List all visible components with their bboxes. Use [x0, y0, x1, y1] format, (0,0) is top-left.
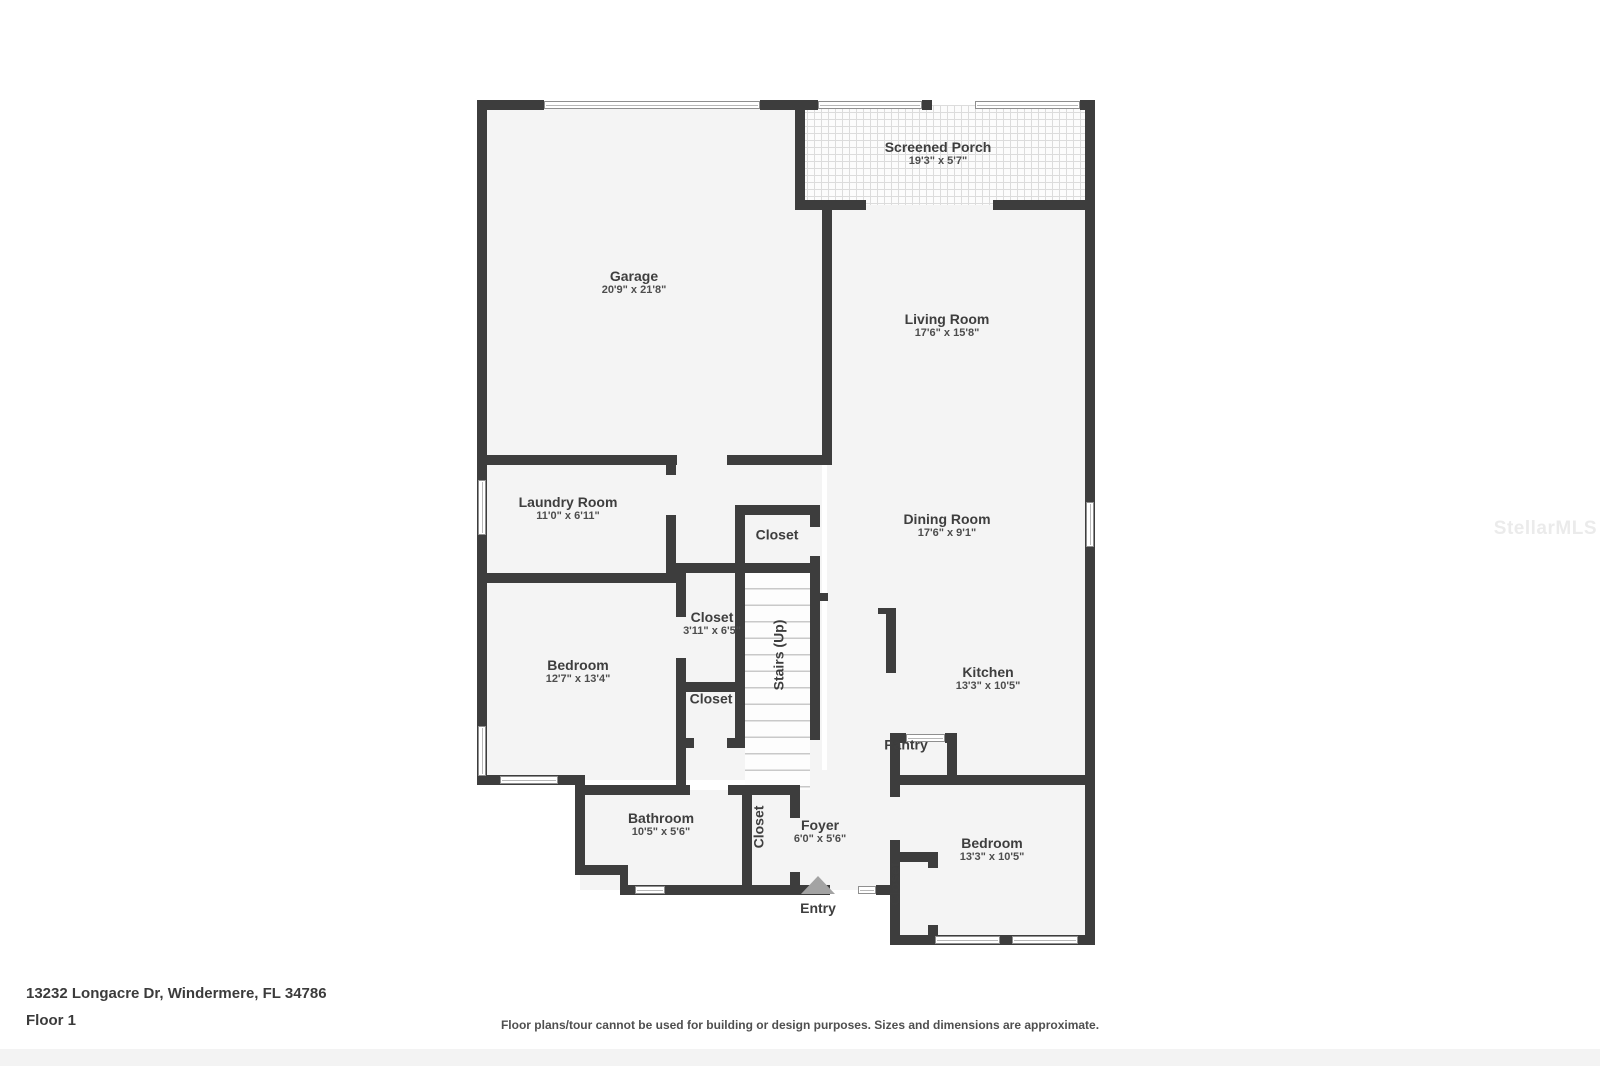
bedroom-window — [478, 726, 486, 776]
wall — [790, 785, 800, 818]
bathroom-window — [635, 886, 665, 894]
wall — [477, 455, 677, 465]
wall — [477, 573, 686, 583]
bedroom-window — [935, 936, 1000, 944]
entry-arrow-icon — [801, 876, 835, 894]
room-label-foyer-closet: Closet — [752, 806, 767, 849]
wall — [820, 593, 828, 601]
wall — [790, 872, 800, 895]
floor-plan: Screened Porch 19'3" x 5'7" Garage 20'9"… — [0, 0, 1600, 1066]
disclaimer: Floor plans/tour cannot be used for buil… — [501, 1018, 1099, 1032]
room-dims: 11'0" x 6'11" — [519, 510, 618, 523]
wall — [890, 775, 1095, 785]
room-name: Living Room — [905, 312, 990, 327]
room-name: Garage — [602, 269, 667, 284]
room-name: Laundry Room — [519, 495, 618, 510]
wall — [922, 100, 932, 110]
room-label-living-room: Living Room 17'6" x 15'8" — [905, 312, 990, 340]
wall — [822, 202, 832, 465]
wall — [735, 563, 745, 748]
room-name: Dining Room — [903, 512, 990, 527]
room-dims: 20'9" x 21'8" — [602, 284, 667, 297]
room-label-laundry-room: Laundry Room 11'0" x 6'11" — [519, 495, 618, 523]
room-name: Screened Porch — [885, 140, 992, 155]
laundry-window — [478, 480, 486, 535]
room-dims: 12'7" x 13'4" — [546, 673, 611, 686]
dining-window — [1086, 502, 1094, 547]
wall — [666, 455, 676, 475]
room-label-bedroom-closet: Closet 3'11" x 6'5" — [683, 610, 741, 638]
room-label-entry-closet: Closet — [888, 863, 903, 906]
wall — [575, 785, 690, 795]
address: 13232 Longacre Dr, Windermere, FL 34786 — [26, 985, 327, 1002]
entry-sidelight-window — [858, 886, 876, 894]
room-dims: 13'3" x 10'5" — [960, 851, 1025, 864]
watermark: StellarMLS — [1494, 518, 1597, 540]
wall — [947, 733, 957, 785]
room-label-bedroom-1: Bedroom 12'7" x 13'4" — [546, 658, 611, 686]
garage-door — [544, 101, 760, 109]
wall — [676, 658, 686, 785]
wall — [760, 100, 818, 110]
room-label-screened-porch: Screened Porch 19'3" x 5'7" — [885, 140, 992, 168]
room-name: Bedroom — [546, 658, 611, 673]
room-dims: 3'11" x 6'5" — [683, 625, 741, 638]
wall — [727, 455, 832, 465]
room-label-stairs: Stairs (Up) — [772, 620, 787, 691]
room-name: Kitchen — [956, 665, 1021, 680]
wall — [795, 100, 805, 210]
wall — [993, 200, 1095, 210]
wall — [810, 563, 820, 740]
room-dims: 19'3" x 5'7" — [885, 155, 992, 168]
room-label-pantry: Pantry — [884, 738, 928, 753]
floor-area — [827, 205, 1090, 780]
room-name: Bedroom — [960, 836, 1025, 851]
room-label-lower-closet: Closet — [690, 692, 733, 707]
bedroom-window — [1012, 936, 1078, 944]
room-name: Stairs (Up) — [772, 620, 787, 691]
room-dims: 13'3" x 10'5" — [956, 680, 1021, 693]
room-label-bedroom-2: Bedroom 13'3" x 10'5" — [960, 836, 1025, 864]
bottom-strip — [0, 1049, 1600, 1066]
room-name: Closet — [888, 863, 903, 906]
wall — [477, 100, 487, 785]
room-label-bathroom: Bathroom 10'5" x 5'6" — [628, 811, 694, 839]
room-name: Closet — [683, 610, 741, 625]
wall — [810, 505, 820, 527]
floor-label: Floor 1 — [26, 1012, 76, 1029]
room-label-kitchen: Kitchen 13'3" x 10'5" — [956, 665, 1021, 693]
porch-window — [975, 101, 1080, 109]
porch-window — [818, 101, 922, 109]
room-name: Pantry — [884, 738, 928, 753]
wall — [676, 563, 686, 617]
wall — [928, 852, 938, 868]
wall — [735, 505, 820, 515]
room-dims: 6'0" x 5'6" — [794, 833, 846, 846]
room-dims: 10'5" x 5'6" — [628, 826, 694, 839]
room-name: Bathroom — [628, 811, 694, 826]
room-name: Closet — [690, 692, 733, 707]
room-label-foyer: Foyer 6'0" x 5'6" — [794, 818, 846, 846]
room-name: Closet — [756, 528, 799, 543]
room-dims: 17'6" x 9'1" — [903, 527, 990, 540]
room-label-hall-closet: Closet — [756, 528, 799, 543]
entry-label: Entry — [800, 900, 836, 916]
wall — [676, 563, 820, 573]
wall — [575, 785, 585, 875]
room-label-dining-room: Dining Room 17'6" x 9'1" — [903, 512, 990, 540]
wall — [886, 608, 896, 673]
room-label-garage: Garage 20'9" x 21'8" — [602, 269, 667, 297]
side-window — [500, 776, 558, 784]
room-dims: 17'6" x 15'8" — [905, 327, 990, 340]
wall — [477, 100, 544, 110]
room-name: Closet — [752, 806, 767, 849]
room-name: Foyer — [794, 818, 846, 833]
wall — [620, 865, 628, 895]
wall — [666, 515, 676, 583]
